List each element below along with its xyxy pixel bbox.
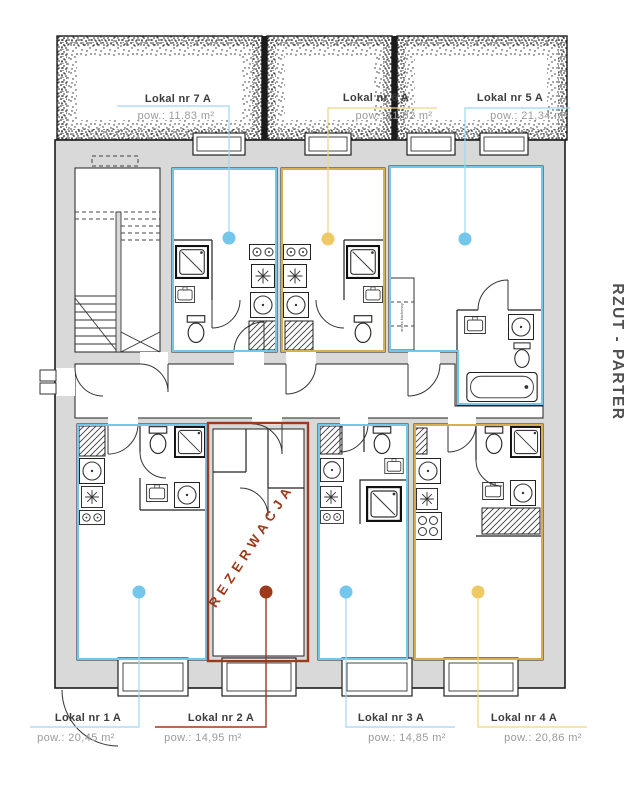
fridge-icon [252, 265, 275, 288]
shower-icon [176, 246, 208, 278]
sink-icon [416, 459, 441, 484]
marker-dot-5a [459, 233, 472, 246]
area-unit-5a: pow.: 21,34 m² [490, 110, 568, 122]
garden-unit-5a [397, 36, 567, 140]
washbasin-icon [363, 287, 382, 303]
stoop [444, 658, 518, 696]
toilet-icon [187, 316, 205, 343]
toilet-icon [514, 343, 530, 368]
stove-icon [250, 245, 277, 260]
shower-icon [347, 246, 379, 278]
garden-divider [262, 36, 267, 140]
label-unit-4a: Lokal nr 4 A [491, 712, 557, 724]
stove-icon [284, 245, 311, 260]
stove-icon [415, 513, 442, 540]
marker-dot-7a [223, 232, 236, 245]
wardrobe-hatch [285, 321, 313, 350]
wardrobe-hatch [249, 321, 277, 350]
washbasin-icon [175, 287, 194, 303]
wardrobe-hatch [320, 426, 342, 454]
label-unit-3a: Lokal nr 3 A [358, 712, 424, 724]
marker-dot-2a [260, 586, 273, 599]
label-unit-5a: Lokal nr 5 A [477, 92, 543, 104]
wardrobe-hatch [482, 508, 540, 534]
stoop [222, 658, 296, 696]
shower-icon [511, 427, 541, 457]
label-unit-6a: Lokal nr 6 A [343, 92, 409, 104]
fridge-icon [416, 488, 437, 509]
shower-icon [367, 487, 401, 521]
garden-unit-6a [267, 36, 392, 140]
garden-divider [392, 36, 397, 140]
sink-icon [284, 293, 309, 318]
marker-dot-6a [322, 233, 335, 246]
label-unit-7a: Lokal nr 7 A [145, 93, 211, 105]
entry-step [40, 370, 56, 381]
kitchenette-label: aneks kuchenny [399, 303, 404, 332]
wardrobe-hatch [79, 426, 105, 456]
area-unit-6a: pow.: 11,82 m² [356, 110, 433, 122]
shower-icon [175, 427, 205, 457]
sink-icon [509, 315, 534, 340]
toilet-icon [373, 427, 391, 454]
floor-plan-page: aneks kuchenny REZERWACJA [0, 0, 644, 791]
window [480, 133, 528, 155]
fridge-icon [320, 486, 341, 507]
toilet-icon [485, 427, 503, 454]
entry-step [40, 383, 56, 394]
toilet-icon [149, 427, 167, 454]
washbasin-icon [465, 316, 486, 333]
area-unit-7a: pow.: 11.83 m² [138, 110, 215, 122]
washbasin-icon [147, 484, 168, 501]
fridge-icon [81, 486, 102, 507]
marker-dot-3a [340, 586, 353, 599]
area-unit-3a: pow.: 14,85 m² [368, 732, 446, 744]
sink-icon [511, 481, 536, 506]
label-unit-1a: Lokal nr 1 A [55, 712, 121, 724]
sink-icon [175, 483, 200, 508]
washbasin-icon [483, 482, 504, 499]
area-unit-2a: pow.: 14,95 m² [164, 732, 242, 744]
window [193, 133, 245, 155]
stove-icon [320, 511, 343, 524]
marker-dot-1a [133, 586, 146, 599]
fridge-icon [284, 265, 307, 288]
stoop [118, 658, 188, 696]
marker-dot-4a [472, 586, 485, 599]
stove-icon [79, 511, 104, 525]
floor-plan: aneks kuchenny REZERWACJA [0, 0, 644, 791]
washbasin-icon [385, 458, 403, 473]
garden-unit-7a [57, 36, 262, 140]
sink-icon [80, 459, 105, 484]
stoop [342, 658, 412, 696]
toilet-icon [354, 316, 372, 343]
page-title: RZUT - PARTER [609, 283, 626, 420]
window [407, 133, 455, 155]
label-unit-2a: Lokal nr 2 A [188, 712, 254, 724]
bathtub-icon [467, 372, 537, 401]
sink-icon [320, 458, 343, 481]
area-unit-4a: pow.: 20,86 m² [504, 732, 582, 744]
garden-strip [57, 36, 567, 140]
area-unit-1a: pow.: 20,45 m² [37, 732, 115, 744]
sink-icon [251, 293, 276, 318]
wardrobe-hatch [415, 428, 427, 454]
